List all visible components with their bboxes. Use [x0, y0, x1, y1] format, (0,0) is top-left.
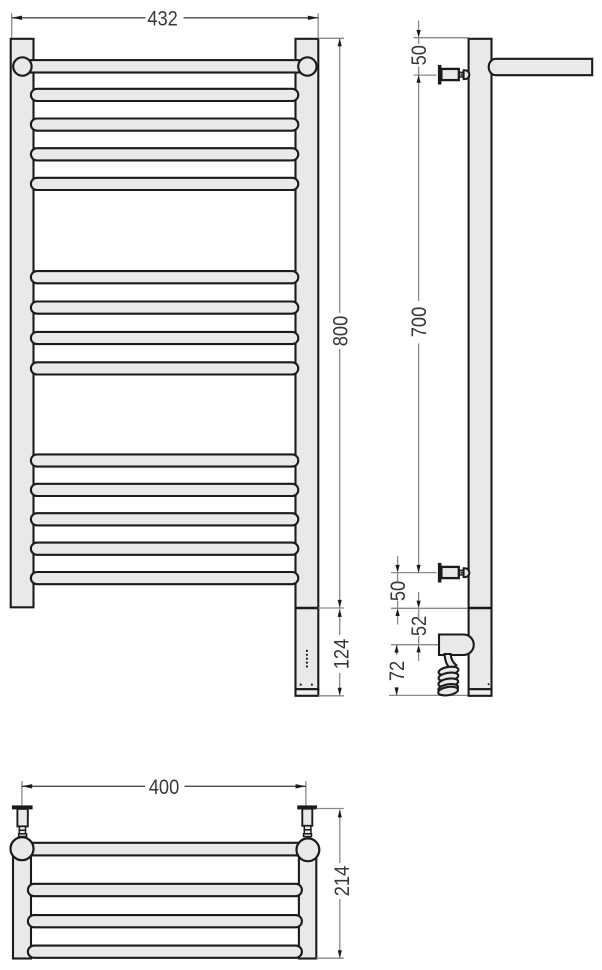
svg-text:400: 400 [149, 776, 180, 799]
svg-text:72: 72 [386, 661, 409, 681]
svg-text:52: 52 [408, 616, 431, 636]
svg-text:700: 700 [408, 307, 431, 338]
svg-text:432: 432 [147, 7, 177, 30]
svg-text:50: 50 [387, 581, 410, 601]
svg-text:214: 214 [331, 866, 354, 897]
svg-text:50: 50 [408, 45, 431, 65]
svg-text:800: 800 [329, 316, 352, 347]
svg-text:124: 124 [330, 639, 353, 670]
